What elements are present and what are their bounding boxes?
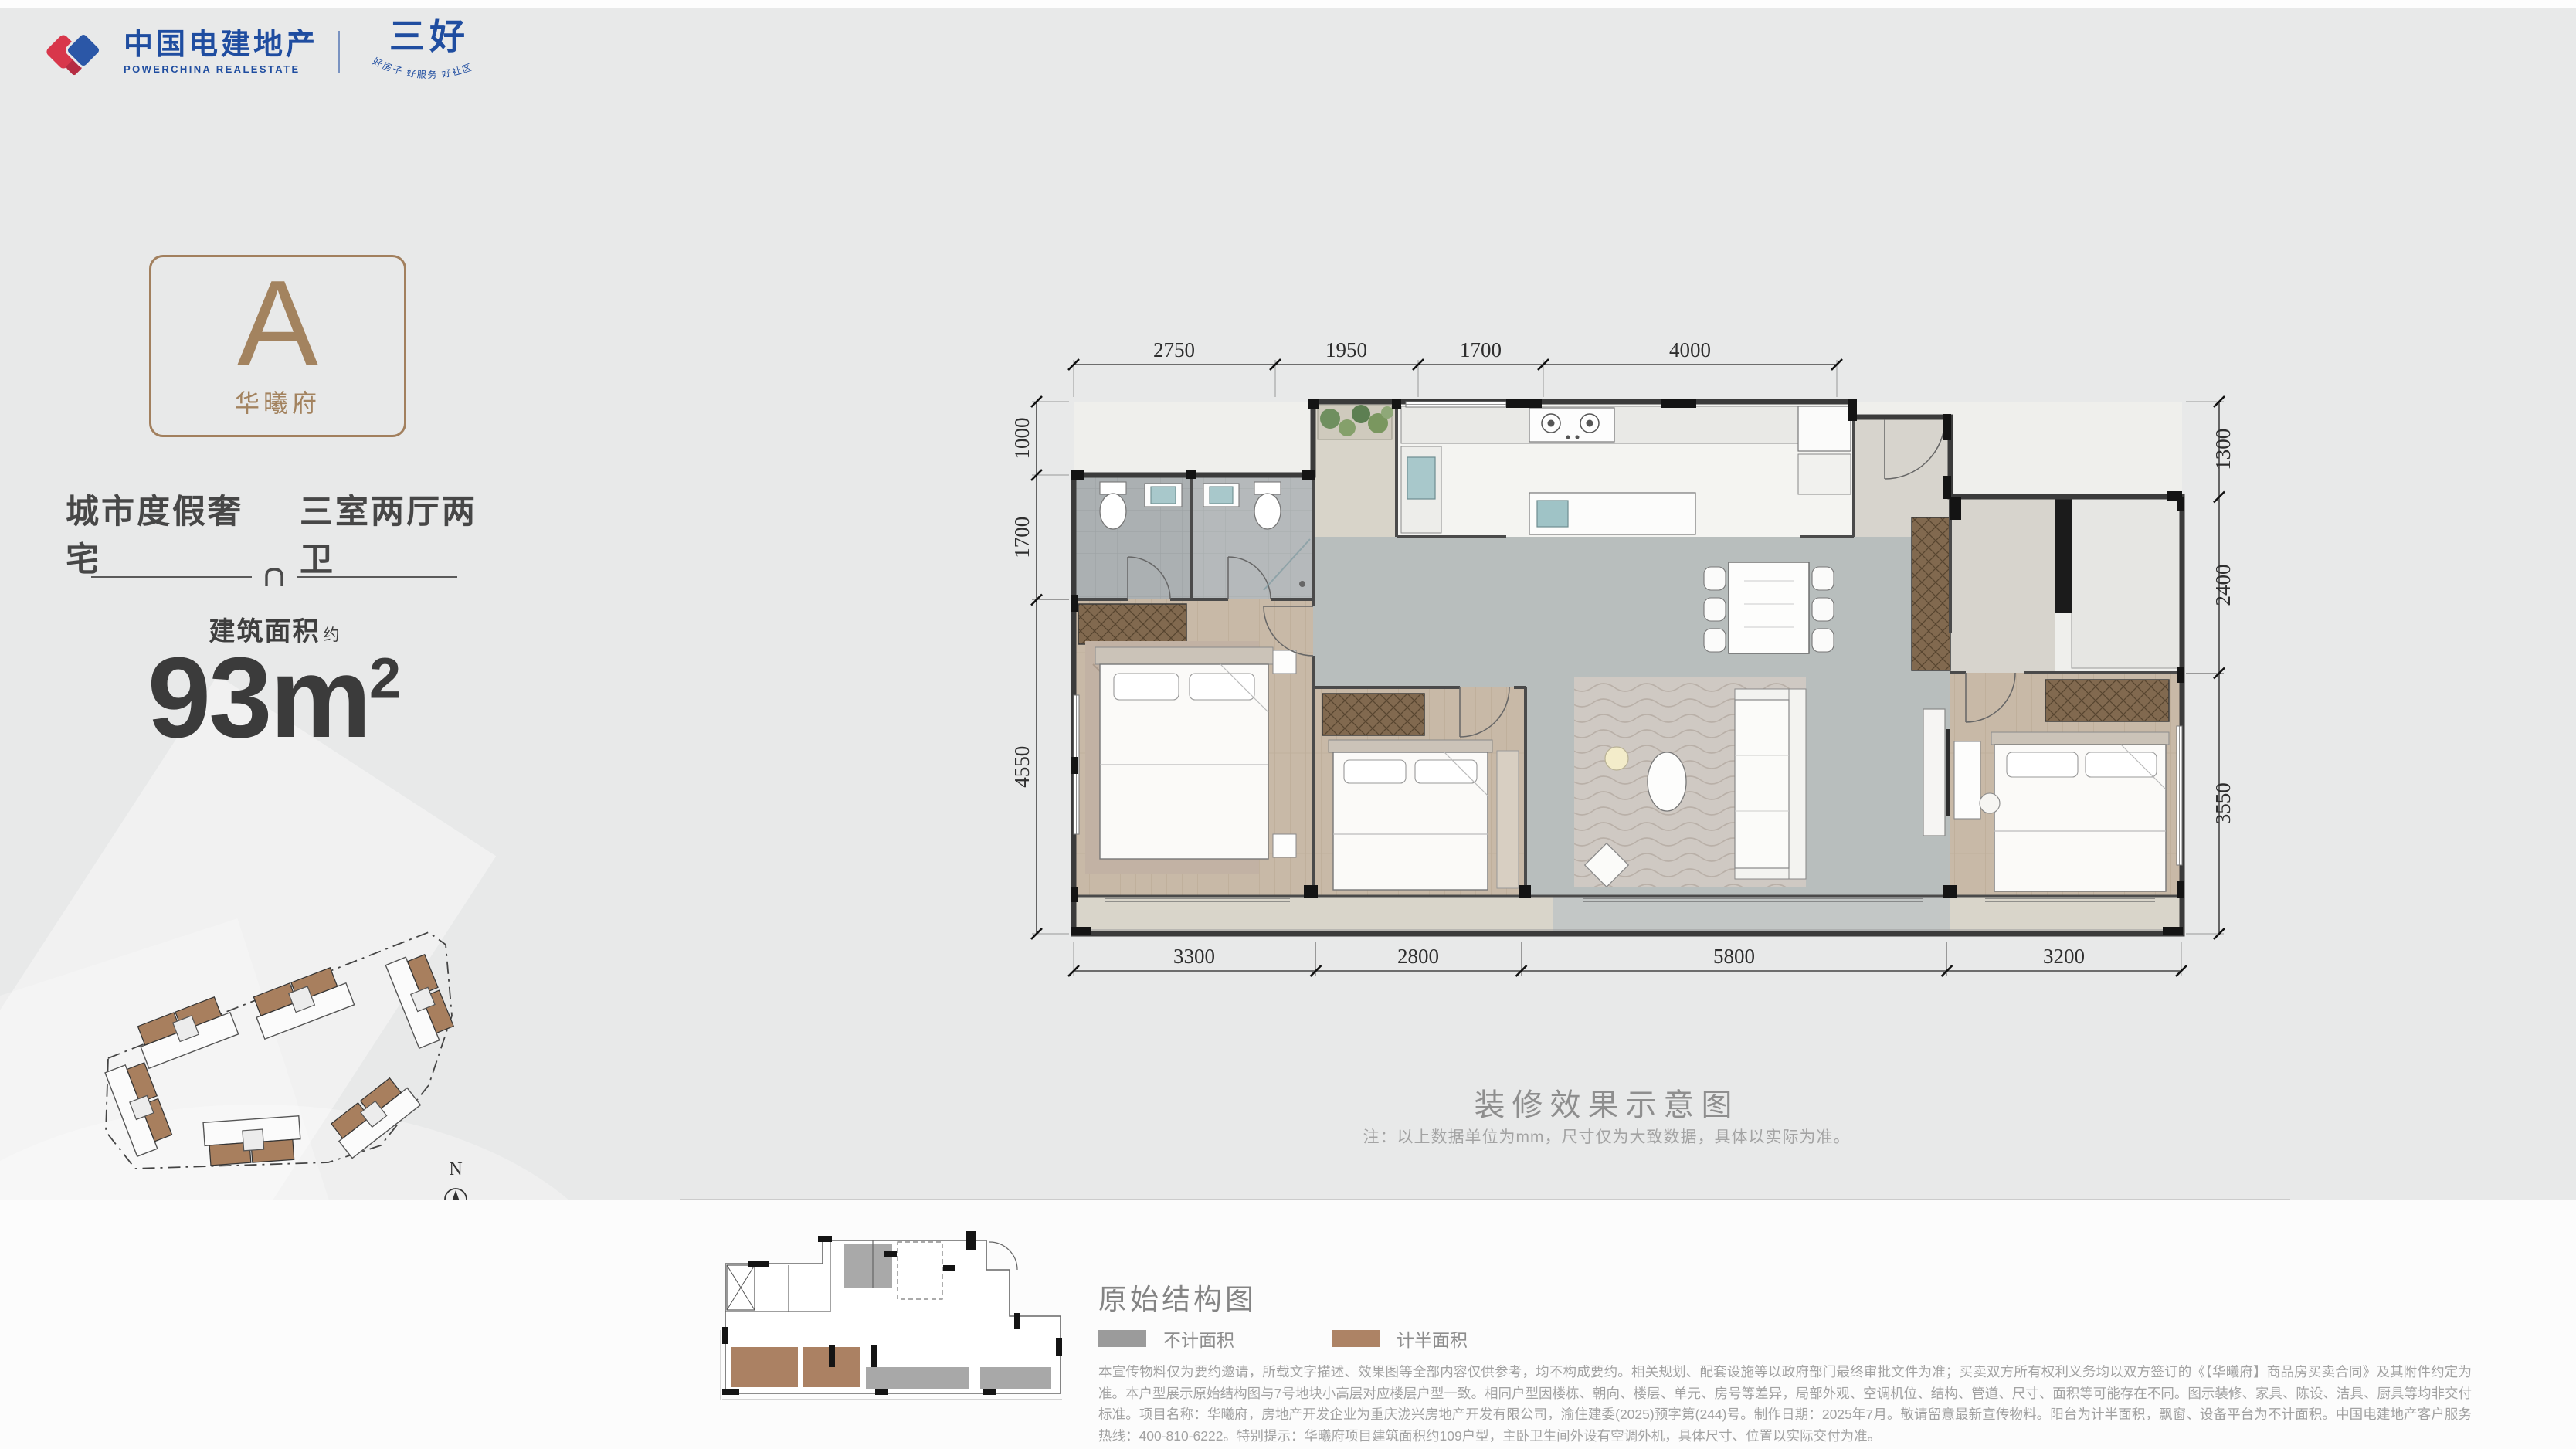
non-counted-strip <box>866 1367 969 1389</box>
legend-swatch-brown <box>1332 1330 1380 1347</box>
structure-title: 原始结构图 <box>1098 1276 1257 1318</box>
kitchen-cabinet <box>1798 454 1851 494</box>
headline-divider <box>91 566 457 588</box>
toilet <box>1254 494 1281 529</box>
hall-storage-cabinet <box>1912 517 1950 670</box>
brand-name-block: 中国电建地产 POWERCHINA REALESTATE <box>124 30 318 74</box>
site-building <box>105 1058 175 1156</box>
brand-header: 中国电建地产 POWERCHINA REALESTATE 三好 好房子 好服务 … <box>43 14 499 90</box>
site-building <box>385 950 456 1048</box>
dim-top: 2750 1950 1700 4000 <box>1068 338 1842 397</box>
svg-text:1300: 1300 <box>2211 429 2235 470</box>
brand-name-cn: 中国电建地产 <box>124 30 318 59</box>
divider-line <box>91 576 252 578</box>
svg-text:1700: 1700 <box>1010 517 1033 558</box>
svg-text:1000: 1000 <box>1010 418 1033 460</box>
sofa <box>1735 700 1789 868</box>
top-white-strip <box>0 0 2576 8</box>
sub-brand-name: 三好 <box>389 19 470 54</box>
site-building <box>134 994 239 1069</box>
toilet <box>1100 494 1126 529</box>
unit-badge: A 华曦府 <box>149 255 406 437</box>
pillow <box>1114 674 1179 700</box>
kitchen-sink <box>1407 457 1435 499</box>
balcony-plants <box>1318 405 1393 439</box>
headboard <box>1095 647 1273 664</box>
door-arc <box>989 1242 1017 1270</box>
svg-text:2400: 2400 <box>2211 565 2235 606</box>
site-building <box>249 965 355 1040</box>
desk <box>1954 741 1980 819</box>
site-building <box>203 1116 302 1166</box>
half-counted-balcony <box>731 1347 798 1387</box>
basin <box>1151 487 1176 504</box>
svg-text:2750: 2750 <box>1153 338 1195 361</box>
non-counted-strip <box>980 1367 1051 1389</box>
area-number: 93m <box>148 634 369 762</box>
floor-plan: 2750 1950 1700 4000 3300 2800 5800 3200 … <box>973 324 2302 1004</box>
basin <box>1210 487 1233 504</box>
corridor-wall <box>2055 497 2072 613</box>
svg-text:3550: 3550 <box>2211 782 2235 824</box>
project-name: 华曦府 <box>235 384 321 419</box>
legend-item: 计半面积 <box>1332 1325 1468 1352</box>
dim-left: 1000 1700 4550 <box>1010 396 1069 939</box>
headboard <box>1329 740 1492 752</box>
nightstand <box>1273 650 1296 674</box>
svg-text:5800: 5800 <box>1713 945 1755 968</box>
coffee-table <box>1648 752 1686 811</box>
sofa-back <box>1789 689 1806 879</box>
island-sink <box>1537 501 1568 527</box>
site-building <box>328 1074 420 1159</box>
brand-separator <box>338 31 340 73</box>
sub-brand-tagline-arc: 好房子 好服务 好社区 <box>360 54 499 90</box>
poster: 中国电建地产 POWERCHINA REALESTATE 三好 好房子 好服务 … <box>0 0 2576 1449</box>
plan-note: 注：以上数据单位为mm，尺寸仅为大致数据，具体以实际为准。 <box>1066 1125 2147 1148</box>
dim-right: 1300 2400 3550 <box>2186 396 2235 939</box>
fridge <box>1798 406 1851 451</box>
divider-line <box>297 576 457 578</box>
svg-text:N: N <box>449 1159 462 1179</box>
desk-chair <box>1980 793 2000 813</box>
tv-console <box>1923 709 1945 836</box>
tv <box>1946 729 1950 816</box>
svg-text:1950: 1950 <box>1325 338 1367 361</box>
headboard <box>1991 732 2169 745</box>
svg-text:好房子 好服务 好社区: 好房子 好服务 好社区 <box>371 56 474 80</box>
sub-brand-block: 三好 好房子 好服务 好社区 <box>360 19 499 90</box>
arch-ornament-icon <box>263 566 286 588</box>
nightstand <box>1273 834 1296 857</box>
corridor-floor <box>1950 497 2055 673</box>
svg-text:3200: 3200 <box>2043 945 2085 968</box>
equipment-platform <box>2072 497 2182 668</box>
pillow <box>2086 752 2157 777</box>
plan-caption: 装修效果示意图 <box>1066 1080 2147 1125</box>
dining-table <box>1729 562 1809 653</box>
pillow <box>2007 752 2078 777</box>
legend-label: 不计面积 <box>1163 1325 1234 1352</box>
wardrobe <box>1322 694 1424 735</box>
floor-lamp <box>1605 747 1628 770</box>
original-structure-plan <box>714 1230 1078 1443</box>
unit-letter: A <box>237 260 318 389</box>
svg-text:3300: 3300 <box>1173 945 1215 968</box>
wardrobe <box>2045 680 2169 721</box>
svg-text:4000: 4000 <box>1669 338 1711 361</box>
svg-text:1700: 1700 <box>1460 338 1502 361</box>
dim-bottom: 3300 2800 5800 3200 <box>1068 942 2187 976</box>
dining-set <box>1704 562 1834 653</box>
svg-text:4550: 4550 <box>1010 746 1033 788</box>
svg-text:2800: 2800 <box>1397 945 1439 968</box>
disclaimer-text: 本宣传物料仅为要约邀请，所载文字描述、效果图等全部内容仅供参考，均不构成要约。相… <box>1098 1362 2472 1447</box>
powerchina-logo-icon <box>43 24 104 80</box>
legend-swatch-gray <box>1098 1330 1146 1347</box>
pillow <box>1190 674 1254 700</box>
structure-legend: 不计面积 计半面积 <box>1098 1325 1468 1352</box>
area-superscript: 2 <box>369 646 401 711</box>
legend-item: 不计面积 <box>1098 1325 1234 1352</box>
floor-drain <box>1299 581 1305 587</box>
wardrobe <box>1078 604 1186 644</box>
bedroom2-rug <box>1497 751 1519 888</box>
pillow <box>1415 760 1477 783</box>
area-value: 93m2 <box>66 638 483 758</box>
non-counted-area <box>844 1244 892 1288</box>
site-plan: N <box>66 900 467 1224</box>
pillow <box>1344 760 1406 783</box>
legend-label: 计半面积 <box>1397 1325 1468 1352</box>
brand-name-en: POWERCHINA REALESTATE <box>124 64 318 74</box>
